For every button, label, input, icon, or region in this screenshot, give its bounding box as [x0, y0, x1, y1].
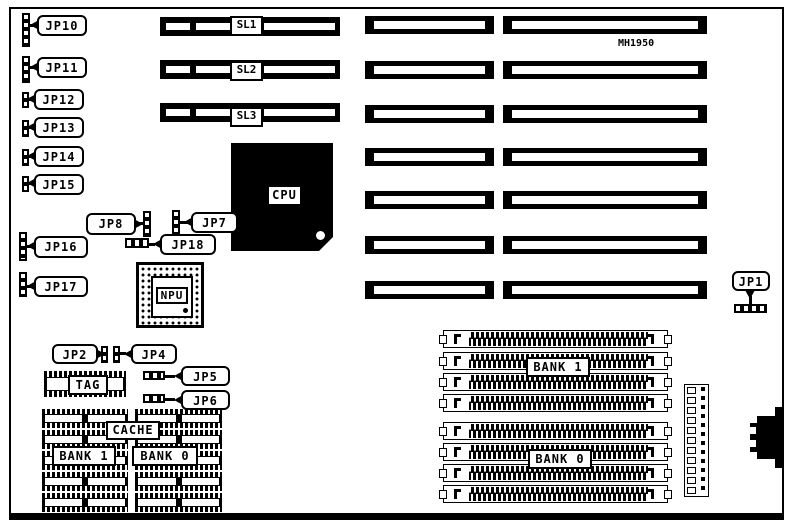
- jp18-pins: [125, 238, 149, 248]
- jp1-leader: [749, 296, 752, 305]
- cpu-label: CPU: [269, 187, 300, 204]
- simm-latch: [664, 399, 672, 408]
- cpu-pin1-dot: [316, 231, 325, 240]
- isa-slot-segment: [503, 236, 707, 254]
- isa-slot-segment: [365, 105, 494, 123]
- simm-hook: [647, 447, 654, 457]
- simm-hook: [454, 426, 461, 436]
- slot-stripe: [166, 66, 190, 73]
- keyboard-connector-notch: [750, 440, 756, 447]
- slot-stripe: [512, 196, 698, 204]
- power-connector-keys: [701, 387, 705, 494]
- slot-stripe: [512, 286, 698, 294]
- jp6-pins: [143, 394, 165, 403]
- slot-stripe: [512, 21, 698, 29]
- slot-sl2-label: SL2: [230, 61, 263, 81]
- simm-hook: [647, 334, 654, 344]
- power-connector: [684, 384, 709, 497]
- simm-latch: [439, 357, 447, 366]
- slot-stripe: [264, 23, 335, 30]
- jp8-leader: [136, 222, 144, 225]
- slot-stripe: [166, 23, 190, 30]
- slot-stripe: [264, 109, 335, 116]
- slot-stripe: [512, 241, 698, 249]
- isa-slot-segment: [365, 191, 494, 209]
- dip-chip: [135, 472, 222, 491]
- jp10-label: JP10: [37, 15, 87, 36]
- slot-stripe: [512, 153, 698, 161]
- keyboard-connector: [775, 407, 783, 468]
- jp2-leader: [98, 352, 103, 355]
- cache-label: CACHE: [106, 421, 160, 440]
- cache-bank1-label: BANK 1: [52, 446, 116, 466]
- jp16-label: JP16: [34, 236, 88, 258]
- simm-socket: [443, 394, 668, 412]
- jp14-label: JP14: [34, 146, 84, 167]
- jp15-label: JP15: [34, 174, 84, 195]
- npu-socket: NPU: [136, 262, 204, 328]
- simm-hook: [647, 468, 654, 478]
- simm-pins: [469, 375, 648, 389]
- slot-stripe: [374, 110, 485, 118]
- slot-stripe: [374, 66, 485, 74]
- simm-latch: [664, 469, 672, 478]
- simm-latch: [439, 399, 447, 408]
- slot-stripe: [166, 109, 190, 116]
- slot-stripe: [374, 153, 485, 161]
- npu-pin1-dot: [183, 308, 188, 313]
- slot-stripe: [196, 109, 234, 116]
- cache-bank0-label: BANK 0: [132, 446, 198, 466]
- jp1-pins: [734, 304, 767, 313]
- isa-slot-segment: [503, 148, 707, 166]
- jp8-label: JP8: [86, 213, 136, 235]
- jp5-pins: [143, 371, 165, 380]
- jp1-label: JP1: [732, 271, 770, 291]
- simm-hook: [647, 398, 654, 408]
- simm-latch: [439, 335, 447, 344]
- simm-pins: [469, 424, 648, 438]
- power-connector-pins: [687, 387, 697, 494]
- jp17-label: JP17: [34, 276, 88, 297]
- simm-hook: [647, 377, 654, 387]
- simm-hook: [647, 356, 654, 366]
- jp7-label: JP7: [191, 212, 238, 233]
- simm-latch: [664, 490, 672, 499]
- cpu-chip: CPU: [231, 143, 333, 251]
- simm-latch: [664, 448, 672, 457]
- slot-stripe: [196, 66, 234, 73]
- jp12-label: JP12: [34, 89, 84, 110]
- jp10-pins: [22, 13, 30, 47]
- slot-stripe: [374, 241, 485, 249]
- slot-stripe: [374, 21, 485, 29]
- simm-hook: [454, 468, 461, 478]
- tag-label: TAG: [68, 375, 108, 395]
- dip-chip: [135, 493, 222, 512]
- slot-stripe: [196, 23, 234, 30]
- simm-hook: [454, 398, 461, 408]
- simm-socket: [443, 422, 668, 440]
- simm-pins: [469, 487, 648, 501]
- simm-socket: [443, 330, 668, 348]
- simm-latch: [664, 427, 672, 436]
- keyboard-connector-notch: [750, 427, 756, 434]
- dip-chip: [42, 493, 128, 512]
- simm-latch: [664, 357, 672, 366]
- isa-slot-segment: [365, 236, 494, 254]
- simm-bank0-label: BANK 0: [528, 449, 592, 469]
- jp13-label: JP13: [34, 117, 84, 138]
- simm-latch: [439, 427, 447, 436]
- slot-sl1: SL1: [160, 17, 340, 36]
- jp18-label: JP18: [160, 234, 216, 255]
- jp11-label: JP11: [37, 57, 87, 78]
- slot-sl1-label: SL1: [230, 16, 263, 36]
- isa-slot-segment: [365, 16, 494, 34]
- part-number-label: MH1950: [618, 38, 654, 49]
- jp6-label: JP6: [181, 390, 230, 410]
- isa-slot-segment: [503, 61, 707, 79]
- simm-latch: [439, 490, 447, 499]
- isa-slot-segment: [503, 191, 707, 209]
- jp4-label: JP4: [131, 344, 177, 364]
- slot-sl3: SL3: [160, 103, 340, 122]
- isa-slot-segment: [365, 281, 494, 299]
- isa-slot-segment: [503, 281, 707, 299]
- simm-hook: [647, 489, 654, 499]
- keyboard-connector-body: [757, 416, 775, 459]
- slot-stripe: [374, 196, 485, 204]
- simm-hook: [454, 334, 461, 344]
- simm-hook: [454, 356, 461, 366]
- jp2-label: JP2: [52, 344, 98, 364]
- jp11-pins: [22, 56, 30, 83]
- simm-hook: [454, 489, 461, 499]
- simm-hook: [454, 447, 461, 457]
- simm-latch: [439, 448, 447, 457]
- simm-hook: [454, 377, 461, 387]
- simm-latch: [664, 378, 672, 387]
- motherboard-diagram: MH1950 SL1 SL2 SL3 JP10: [0, 0, 791, 527]
- jp5-label: JP5: [181, 366, 230, 386]
- simm-latch: [664, 335, 672, 344]
- npu-label: NPU: [156, 287, 188, 304]
- isa-slot-segment: [503, 105, 707, 123]
- simm-latch: [439, 378, 447, 387]
- simm-pins: [469, 332, 648, 346]
- simm-bank1-label: BANK 1: [526, 357, 590, 377]
- jp8-pins: [143, 211, 151, 237]
- simm-pins: [469, 396, 648, 410]
- slot-stripe: [512, 110, 698, 118]
- simm-latch: [439, 469, 447, 478]
- isa-slot-segment: [365, 61, 494, 79]
- npu-socket-inner: NPU: [151, 276, 193, 318]
- slot-stripe: [264, 66, 335, 73]
- dip-chip: [42, 472, 128, 491]
- isa-slot-segment: [365, 148, 494, 166]
- isa-slot-segment: [503, 16, 707, 34]
- simm-socket: [443, 485, 668, 503]
- slot-sl3-label: SL3: [230, 107, 263, 127]
- simm-hook: [647, 426, 654, 436]
- slot-sl2: SL2: [160, 60, 340, 79]
- slot-stripe: [512, 66, 698, 74]
- slot-stripe: [374, 286, 485, 294]
